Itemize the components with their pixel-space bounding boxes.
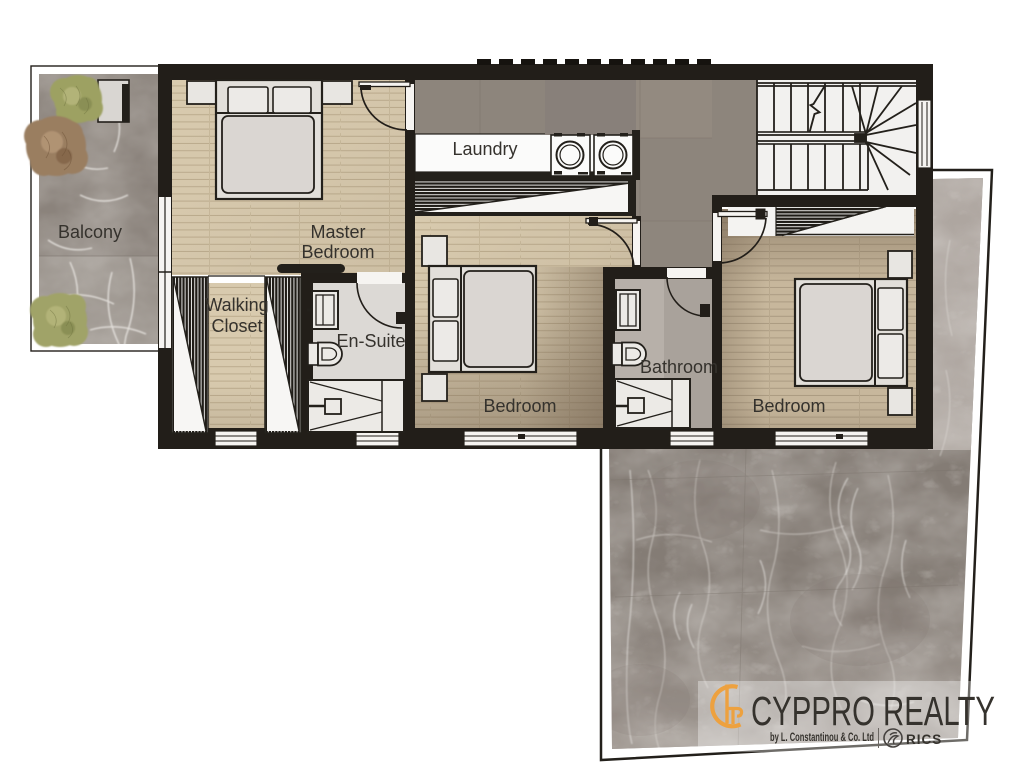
svg-text:Laundry: Laundry bbox=[452, 139, 517, 159]
svg-text:Master: Master bbox=[310, 222, 365, 242]
svg-text:by L. Constantinou & Co. Ltd: by L. Constantinou & Co. Ltd bbox=[770, 732, 874, 744]
svg-text:Bedroom: Bedroom bbox=[752, 396, 825, 416]
svg-text:Bedroom: Bedroom bbox=[301, 242, 374, 262]
svg-text:Bathroom: Bathroom bbox=[640, 357, 718, 377]
svg-text:CYPPRO REALTY: CYPPRO REALTY bbox=[751, 688, 995, 734]
svg-text:Closet: Closet bbox=[211, 316, 262, 336]
svg-text:Bedroom: Bedroom bbox=[483, 396, 556, 416]
svg-text:Balcony: Balcony bbox=[58, 222, 122, 242]
svg-text:RICS: RICS bbox=[906, 732, 942, 747]
svg-text:En-Suite: En-Suite bbox=[336, 331, 405, 351]
svg-text:Walking: Walking bbox=[205, 295, 268, 315]
